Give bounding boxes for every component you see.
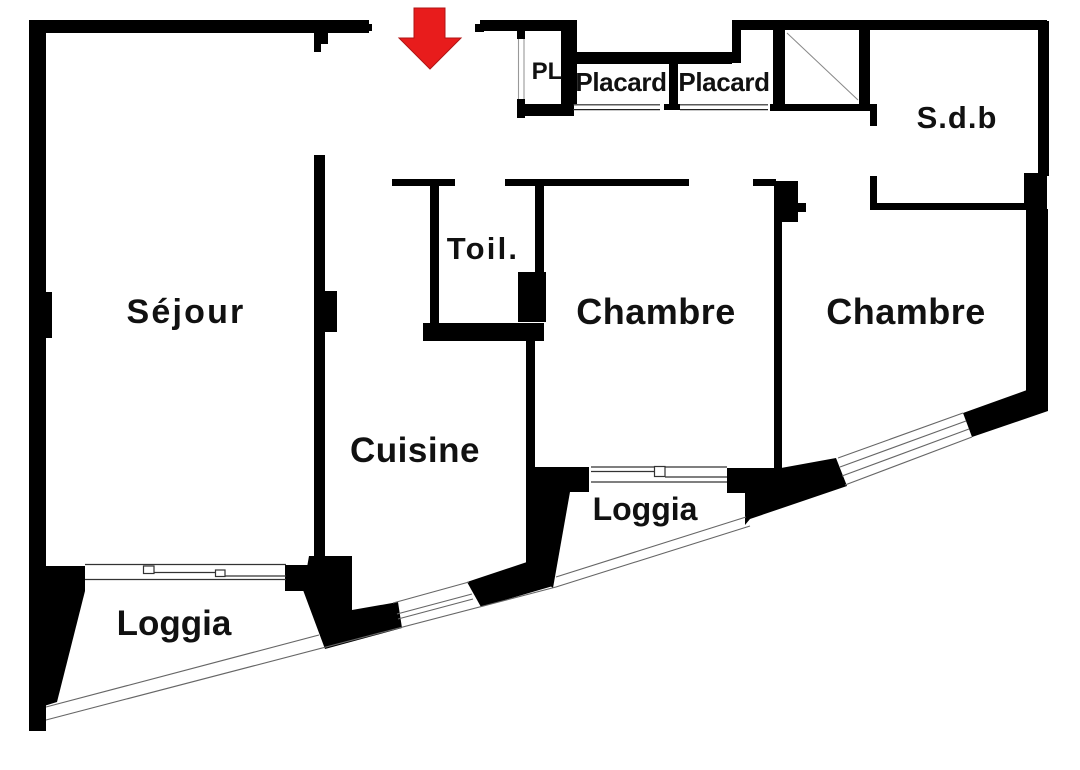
svg-text:Cuisine: Cuisine (350, 431, 480, 470)
svg-text:Chambre: Chambre (576, 291, 736, 332)
svg-text:S.d.b: S.d.b (917, 100, 998, 135)
svg-text:Toil.: Toil. (447, 231, 519, 266)
svg-text:Loggia: Loggia (593, 491, 698, 527)
svg-text:Placard: Placard (575, 67, 666, 97)
svg-text:Séjour: Séjour (126, 293, 245, 331)
svg-text:PL: PL (532, 58, 563, 85)
svg-text:Loggia: Loggia (117, 604, 232, 643)
svg-text:Placard: Placard (678, 67, 769, 97)
svg-text:Chambre: Chambre (826, 291, 986, 332)
